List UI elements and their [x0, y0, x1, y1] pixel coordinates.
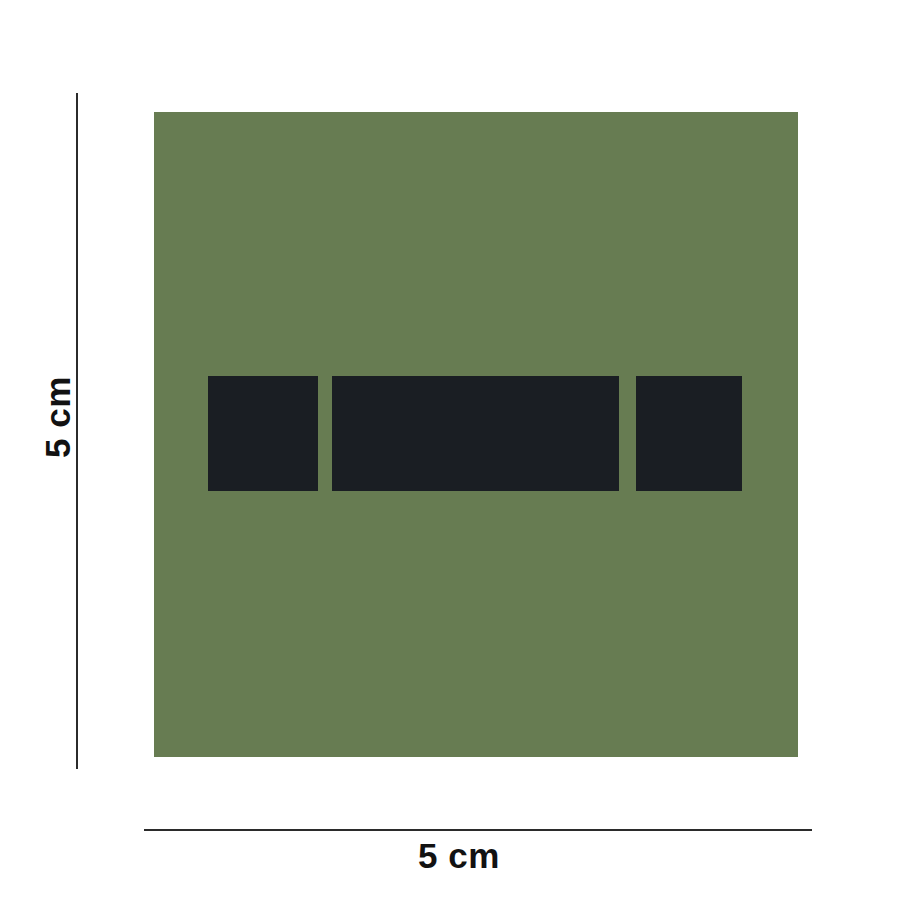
- product-dimension-diagram: 5 cm 5 cm: [0, 0, 900, 900]
- insignia-right-square: [636, 376, 742, 491]
- rank-insignia: [154, 376, 798, 491]
- width-dimension-label: 5 cm: [418, 838, 500, 873]
- width-dimension-line: [144, 829, 812, 831]
- patch-swatch: [154, 112, 798, 757]
- height-dimension-label: 5 cm: [40, 376, 75, 458]
- insignia-left-square: [208, 376, 318, 491]
- insignia-center-bar: [332, 376, 619, 491]
